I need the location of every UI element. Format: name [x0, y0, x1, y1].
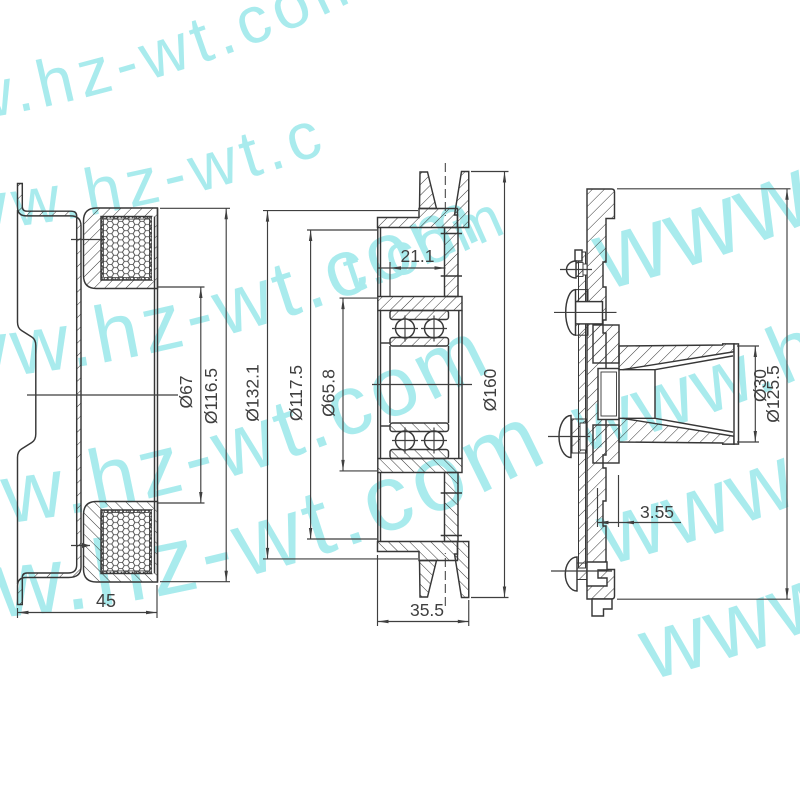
svg-text:Ø125.5: Ø125.5	[763, 365, 783, 422]
svg-text:3.55: 3.55	[640, 502, 674, 522]
svg-text:Ø116.5: Ø116.5	[201, 368, 221, 424]
svg-text:45: 45	[96, 591, 116, 611]
svg-text:Ø117.5: Ø117.5	[286, 365, 306, 421]
svg-text:Ø67: Ø67	[176, 375, 196, 408]
svg-text:Ø132.1: Ø132.1	[243, 364, 263, 421]
svg-text:21.1: 21.1	[400, 246, 434, 266]
svg-text:Ø65.8: Ø65.8	[319, 369, 339, 417]
svg-text:35.5: 35.5	[410, 600, 444, 620]
svg-text:Ø160: Ø160	[480, 368, 500, 411]
